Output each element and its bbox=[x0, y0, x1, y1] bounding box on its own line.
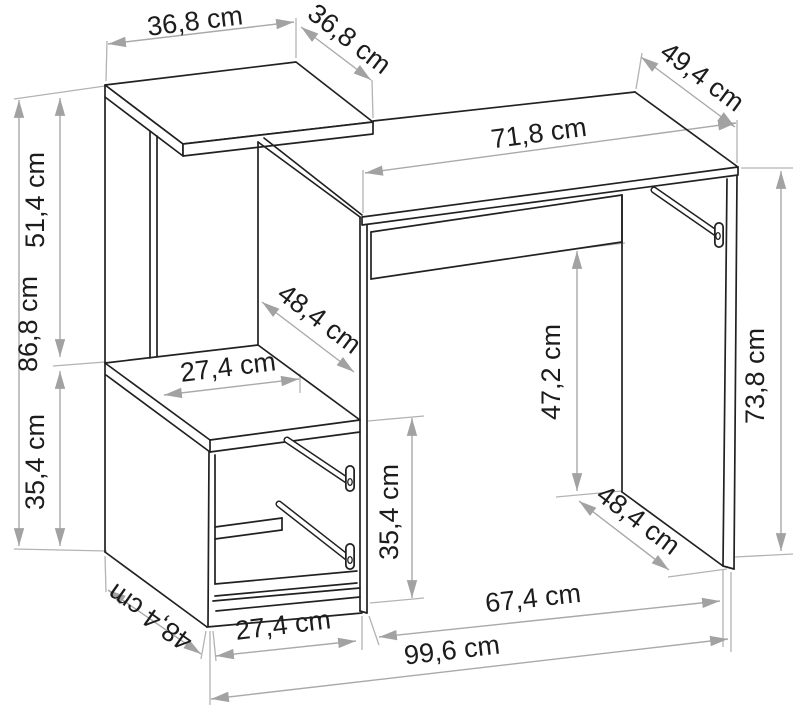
dim-label-left-unit-height: 86,8 cm bbox=[13, 276, 43, 372]
furniture-outline bbox=[105, 62, 738, 627]
dim-label-knee-space-height: 47,2 cm bbox=[536, 324, 566, 420]
dim-label-cabinet-opening-height: 35,4 cm bbox=[374, 464, 404, 560]
panel-slide-bracket bbox=[654, 190, 720, 243]
dim-label-cabinet-base-depth: 48,4 cm bbox=[102, 578, 198, 658]
diagram-canvas: 36,8 cm 36,8 cm 49,4 cm 71,8 cm 51,4 cm … bbox=[0, 0, 800, 716]
drawer-slide-rail-upper bbox=[287, 440, 352, 487]
dim-label-upper-shelf-height: 51,4 cm bbox=[20, 152, 50, 248]
dim-label-total-width: 99,6 cm bbox=[403, 630, 502, 671]
dim-label-desk-base-width: 67,4 cm bbox=[484, 578, 583, 618]
dimension-diagram: 36,8 cm 36,8 cm 49,4 cm 71,8 cm 51,4 cm … bbox=[0, 0, 800, 716]
dim-label-desktop-width: 71,8 cm bbox=[489, 112, 588, 154]
dim-label-left-cabinet-height: 35,4 cm bbox=[20, 414, 50, 510]
dim-label-cabinet-base-width: 27,4 cm bbox=[233, 604, 332, 645]
dim-label-desk-side-depth: 48,4 cm bbox=[591, 479, 686, 561]
tower-left-panel bbox=[105, 97, 157, 552]
dim-label-top-shelf-width: 36,8 cm bbox=[145, 0, 244, 41]
tower-top-board bbox=[105, 62, 373, 156]
dim-label-top-shelf-depth: 36,8 cm bbox=[302, 0, 396, 80]
dim-label-desk-height: 73,8 cm bbox=[740, 328, 770, 424]
dim-label-middle-shelf-depth: 48,4 cm bbox=[272, 278, 367, 360]
drawer-slide-rail-lower bbox=[279, 504, 352, 565]
dim-label-desktop-depth: 49,4 cm bbox=[655, 36, 750, 117]
